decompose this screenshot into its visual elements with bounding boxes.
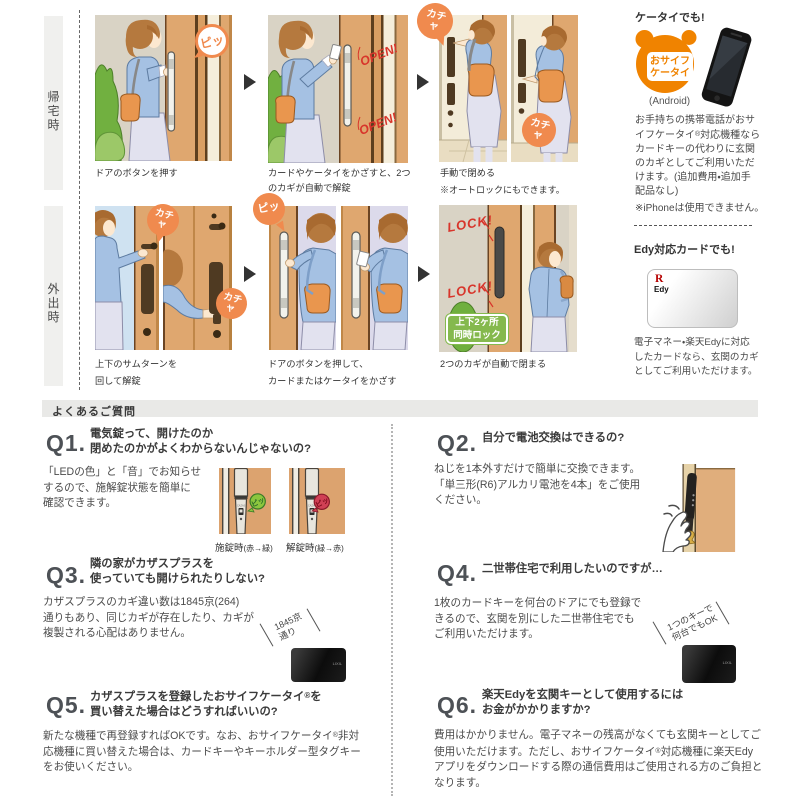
svg-text:おサイフ: おサイフ	[650, 55, 690, 67]
svg-text:CAZAS: CAZAS	[237, 505, 246, 508]
svg-text:ケータイ: ケータイ	[650, 67, 690, 79]
